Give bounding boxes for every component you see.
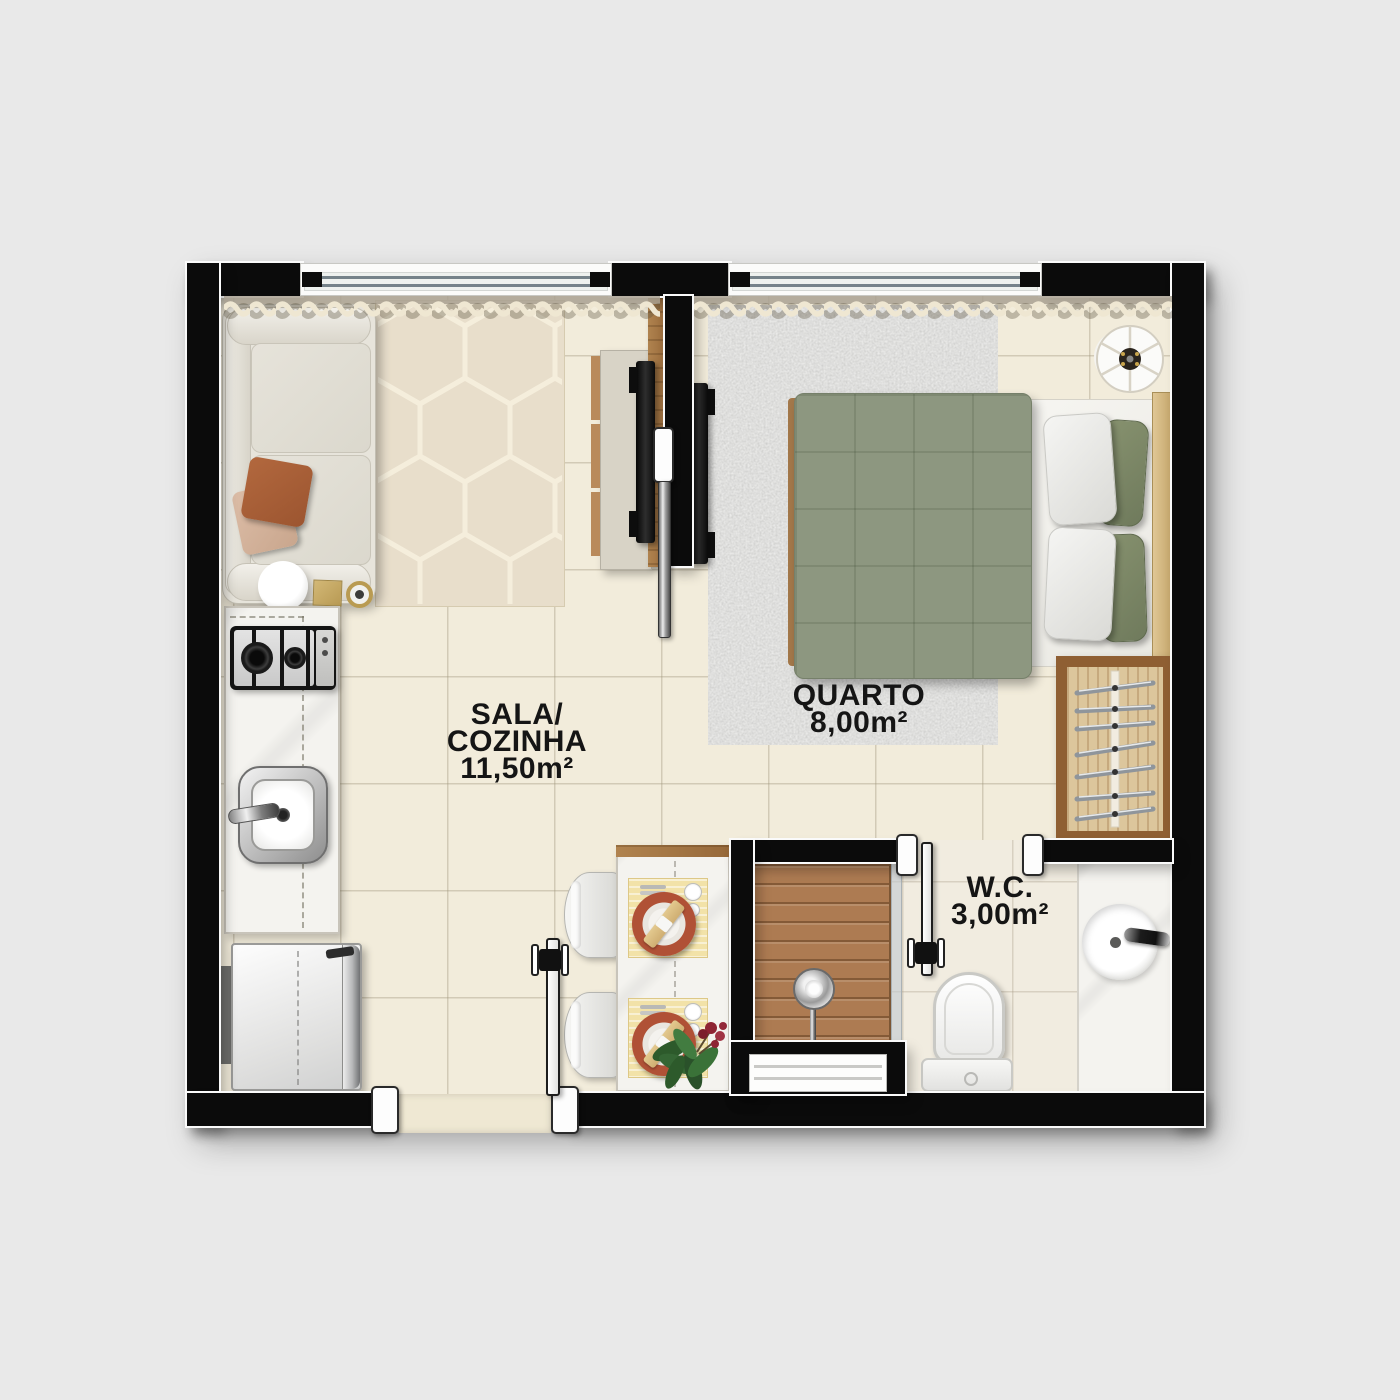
room-label-wc: W.C. 3,00m²	[951, 874, 1049, 928]
cooktop-burner-large	[241, 642, 273, 674]
room-name: COZINHA	[447, 728, 587, 755]
refrigerator	[231, 943, 362, 1091]
wc-door-jamb-right	[1022, 834, 1044, 876]
room-area: 3,00m²	[951, 901, 1049, 928]
shower-head-icon	[793, 968, 835, 1010]
tv-bracket	[629, 367, 637, 393]
shower-floor	[751, 862, 891, 1042]
hex-rug	[375, 300, 565, 607]
cutlery-icon	[640, 885, 666, 889]
rack-wood-strip	[591, 424, 600, 488]
entry-threshold	[399, 1094, 551, 1133]
wc-door-handle	[937, 938, 945, 968]
window-cap	[1020, 272, 1040, 287]
bed-duvet	[794, 393, 1032, 679]
throw-pillow-terracotta	[240, 456, 314, 528]
curtain-sala	[224, 296, 660, 320]
wc-door-handle-core	[915, 942, 937, 964]
window-pane	[303, 276, 609, 279]
floor-plan-canvas: SALA/ COZINHA 11,50m² QUARTO 8,00m² W.C.…	[0, 0, 1400, 1400]
toilet-flush-button	[964, 1072, 978, 1086]
napkin	[642, 899, 685, 949]
rack-wood-strip	[591, 356, 600, 420]
tv-bracket	[629, 511, 637, 537]
entry-door-handle	[531, 944, 539, 976]
bed-pillow-white	[1042, 412, 1118, 526]
wc-window-pane	[754, 1065, 882, 1068]
wall-top-middle	[610, 263, 730, 296]
tv-bracket	[707, 389, 715, 415]
sofa	[222, 304, 376, 604]
window-pane	[731, 276, 1039, 279]
cooktop-controls	[316, 630, 334, 686]
sink-drain	[1110, 937, 1121, 948]
window-cap	[302, 272, 322, 287]
toilet	[933, 972, 1005, 1064]
entry-door-handle	[561, 944, 569, 976]
window-cap	[730, 272, 750, 287]
room-area: 8,00m²	[793, 709, 925, 736]
entry-door-handle-core	[539, 949, 561, 971]
room-label-sala: SALA/ COZINHA 11,50m²	[447, 701, 587, 782]
wall-wc-top-right	[1031, 840, 1172, 862]
wardrobe	[1056, 656, 1174, 842]
fridge-door-edge	[342, 945, 360, 1089]
room-name: SALA/	[447, 701, 587, 728]
toilet-seat	[944, 983, 994, 1055]
curtain-wave-icon	[694, 298, 1172, 322]
wall-bottom-right	[565, 1093, 1204, 1126]
cooktop	[230, 626, 336, 690]
window-pane	[731, 284, 1039, 287]
tv-bracket	[707, 532, 715, 558]
decor-tray-dot	[355, 590, 364, 599]
cooktop-knob	[322, 637, 328, 643]
window-pane	[303, 284, 609, 287]
sliding-door	[658, 481, 671, 638]
dining-chair-1	[564, 872, 622, 958]
rack-wood-strip	[591, 492, 600, 556]
floor-lamp-icon	[1090, 321, 1166, 397]
shower-glass-panel	[891, 862, 902, 1044]
small-dish	[684, 883, 702, 901]
wc-door-handle	[907, 938, 915, 968]
wall-left	[187, 263, 219, 1126]
tv-bedroom-icon	[690, 383, 708, 564]
room-area: 11,50m²	[447, 755, 587, 782]
plate-1	[632, 892, 696, 956]
sofa-seat-cushion	[251, 343, 371, 453]
room-label-quarto: QUARTO 8,00m²	[793, 682, 925, 736]
sliding-door-jamb	[653, 427, 674, 483]
decor-gold-box	[313, 580, 343, 607]
napkin-ring	[655, 915, 673, 933]
counter-dashed-line	[230, 616, 304, 618]
room-name: W.C.	[951, 874, 1049, 901]
curtain-wave-icon	[224, 298, 660, 322]
chair-back	[571, 1001, 581, 1069]
decor-tray	[346, 581, 373, 608]
cooktop-knob	[322, 650, 328, 656]
headboard	[1152, 392, 1171, 672]
shower-head-center	[805, 980, 823, 998]
potted-plant	[645, 1004, 737, 1096]
wall-right	[1172, 263, 1204, 1126]
chair-back	[571, 881, 581, 949]
wall-bottom-left	[187, 1093, 385, 1126]
dining-chair-2	[564, 992, 622, 1078]
side-table	[258, 561, 308, 611]
window-glass	[732, 272, 1038, 291]
curtain-quarto	[694, 296, 1172, 320]
wall-wc-top-left	[731, 840, 905, 862]
window-glass	[304, 272, 608, 291]
window-sala	[300, 263, 612, 296]
wc-door-jamb-left	[896, 834, 918, 876]
window-quarto	[728, 263, 1042, 296]
toilet-tank	[921, 1058, 1013, 1092]
room-name: QUARTO	[793, 682, 925, 709]
fridge-dashed-line	[297, 951, 299, 1085]
cooktop-burner-small	[284, 647, 306, 669]
cooktop-grate	[306, 630, 310, 686]
bed-pillow-white	[1043, 526, 1117, 641]
entry-door-jamb-left	[371, 1086, 399, 1134]
wc-window	[749, 1054, 887, 1092]
wc-window-pane	[754, 1077, 882, 1080]
window-cap	[590, 272, 610, 287]
wardrobe-hangers-icon	[1067, 667, 1163, 831]
table-wood-edge	[616, 845, 730, 857]
